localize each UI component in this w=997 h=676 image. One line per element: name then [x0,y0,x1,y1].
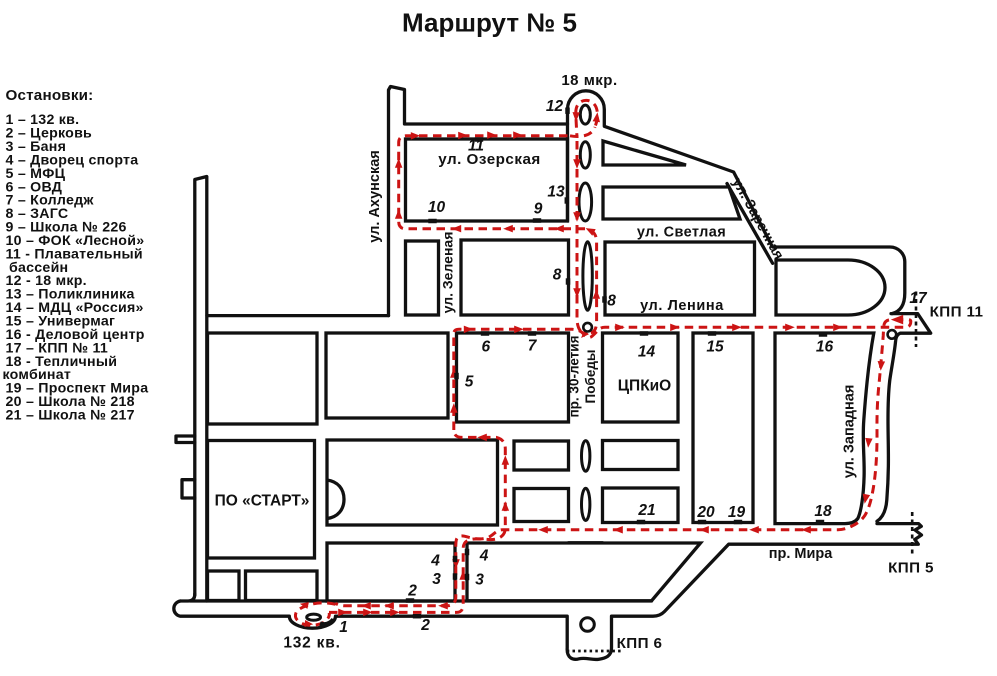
svg-text:2: 2 [407,583,417,600]
svg-text:ул. Светлая: ул. Светлая [637,225,726,241]
svg-text:3: 3 [432,571,441,588]
svg-text:12: 12 [546,98,564,115]
svg-text:21: 21 [637,502,655,519]
svg-text:5: 5 [465,374,474,391]
svg-text:Победы: Победы [583,350,598,404]
svg-text:21 – Школа № 217: 21 – Школа № 217 [6,407,135,423]
svg-text:14: 14 [638,344,656,361]
svg-text:18 мкр.: 18 мкр. [561,72,617,89]
svg-text:пр. 30-летия: пр. 30-летия [567,336,582,418]
svg-text:3: 3 [475,572,484,589]
svg-text:ул. Зеленая: ул. Зеленая [440,232,456,314]
svg-text:ПО «СТАРТ»: ПО «СТАРТ» [215,493,310,510]
svg-text:ул. Ахунская: ул. Ахунская [367,150,383,243]
svg-text:13: 13 [547,184,565,201]
svg-text:15: 15 [706,339,724,356]
svg-text:11: 11 [468,138,484,155]
svg-text:4: 4 [430,553,440,570]
svg-text:пр. Мира: пр. Мира [769,546,834,562]
svg-text:7: 7 [528,338,538,355]
svg-text:ул. Ленина: ул. Ленина [640,298,724,314]
svg-text:19: 19 [728,504,746,521]
svg-text:20: 20 [696,504,715,521]
svg-text:8: 8 [607,293,616,310]
svg-text:Маршрут № 5: Маршрут № 5 [402,8,577,38]
svg-text:17: 17 [909,290,928,307]
svg-text:КПП 6: КПП 6 [617,635,663,652]
svg-text:4: 4 [479,548,489,565]
svg-text:2: 2 [420,617,430,634]
svg-text:132 кв.: 132 кв. [283,635,340,652]
svg-text:ул. Западная: ул. Западная [842,385,858,479]
svg-text:1: 1 [339,619,348,636]
svg-text:8: 8 [553,267,562,284]
svg-text:Остановки:: Остановки: [6,87,94,104]
svg-text:ул. Озерская: ул. Озерская [438,151,541,168]
svg-text:18: 18 [814,503,832,520]
svg-text:6: 6 [481,339,490,356]
svg-text:16: 16 [816,339,834,356]
svg-text:КПП 5: КПП 5 [888,560,934,577]
svg-text:10: 10 [428,199,446,216]
svg-text:ЦПКиО: ЦПКиО [618,378,672,395]
svg-text:9: 9 [534,201,543,218]
svg-text:КПП 11: КПП 11 [930,304,984,321]
